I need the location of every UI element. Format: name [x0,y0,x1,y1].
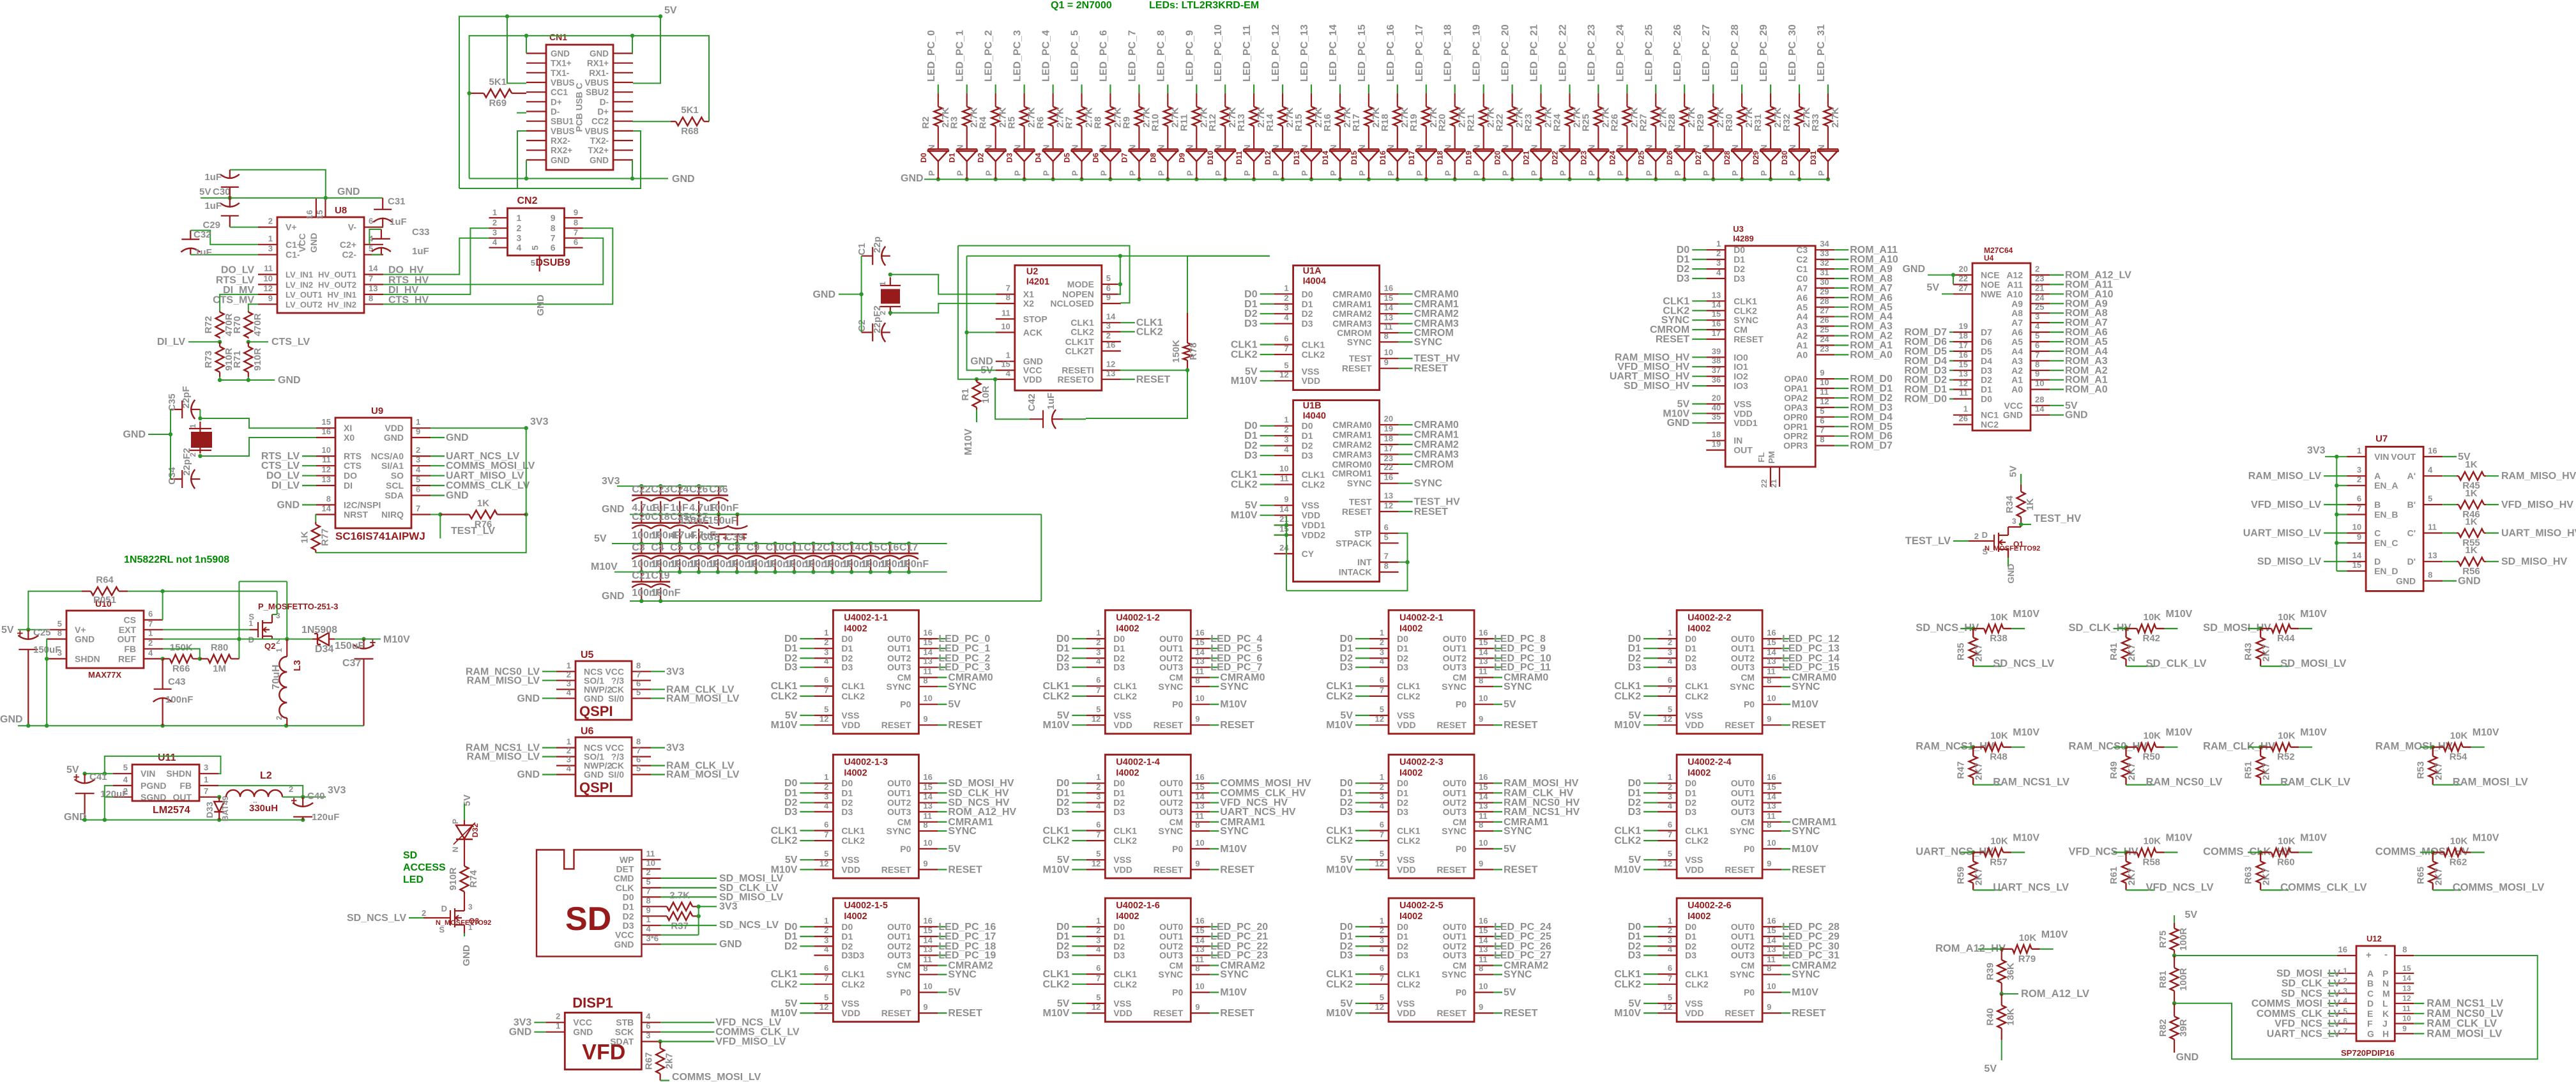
svg-text:3: 3 [567,678,571,688]
svg-text:CMRAM0: CMRAM0 [1332,289,1372,299]
svg-text:SD_MOSI_LV: SD_MOSI_LV [2280,658,2346,669]
svg-text:A12: A12 [2006,270,2023,280]
svg-text:D0: D0 [1734,245,1745,255]
svg-text:4: 4 [1380,657,1385,666]
svg-text:M10V: M10V [1220,987,1247,998]
svg-text:1: 1 [567,737,571,747]
svg-text:2k7: 2k7 [664,1053,675,1069]
svg-text:SD_NCS_LV: SD_NCS_LV [1993,658,2054,669]
svg-text:5V: 5V [594,533,607,544]
svg-text:3: 3 [646,1031,650,1040]
svg-text:5K1: 5K1 [681,105,699,116]
svg-text:C41: C41 [89,772,107,782]
svg-text:12: 12 [264,284,273,293]
svg-text:R67: R67 [644,1052,655,1070]
svg-text:BAT49: BAT49 [220,796,230,821]
svg-text:WP: WP [620,855,634,865]
svg-text:RAM_MISO_LV: RAM_MISO_LV [467,675,540,686]
svg-text:M10V: M10V [2300,609,2327,620]
svg-text:17: 17 [1712,328,1721,338]
svg-text:VFD_MISO_LV: VFD_MISO_LV [715,1037,786,1048]
svg-text:14: 14 [2352,551,2362,560]
svg-text:13: 13 [923,945,932,954]
svg-text:RESET: RESET [1154,1008,1184,1018]
svg-text:M10V: M10V [1231,376,1258,386]
svg-text:5: 5 [636,764,641,773]
svg-text:CLK2: CLK2 [1302,349,1325,360]
svg-text:D1: D1 [841,643,853,653]
svg-text:5: 5 [824,849,828,858]
svg-text:CMRAM2: CMRAM2 [1414,439,1459,450]
svg-text:D0: D0 [1685,922,1696,932]
svg-text:F: F [2367,1019,2373,1029]
svg-text:U2: U2 [1026,266,1039,277]
svg-text:910R: 910R [252,348,263,371]
svg-text:5: 5 [57,619,62,629]
svg-text:D13: D13 [1292,151,1301,165]
svg-text:UART_NCS_LV: UART_NCS_LV [2267,1028,2341,1039]
svg-text:9: 9 [2357,532,2361,542]
svg-text:1: 1 [2357,446,2361,455]
svg-text:OUT1: OUT1 [1159,931,1184,941]
svg-text:COMMS_MOSI_LV: COMMS_MOSI_LV [446,461,535,471]
svg-text:D1: D1 [1302,431,1313,441]
svg-text:14: 14 [1479,935,1488,945]
svg-text:16: 16 [1767,772,1776,782]
svg-text:6: 6 [369,217,373,226]
svg-text:VDD1: VDD1 [1302,520,1326,530]
svg-text:40: 40 [1712,402,1721,412]
svg-text:CLK2: CLK2 [1302,480,1325,490]
svg-text:15: 15 [1195,782,1204,791]
svg-text:COMMS_CLK_LV: COMMS_CLK_LV [2280,882,2366,894]
svg-text:D28: D28 [1723,151,1732,165]
svg-text:CMRAM3: CMRAM3 [1332,449,1372,459]
svg-text:A: A [2367,968,2374,979]
svg-text:1: 1 [824,916,828,926]
svg-text:R47: R47 [1956,761,1967,779]
svg-text:C33: C33 [412,227,430,238]
svg-text:VOUT: VOUT [2391,452,2416,462]
svg-text:30: 30 [1820,277,1829,287]
svg-text:D29: D29 [1751,151,1760,165]
svg-text:D3: D3 [784,662,798,673]
svg-text:P: P [2382,968,2388,979]
svg-text:4: 4 [1284,313,1289,323]
svg-text:C3: C3 [1796,245,1808,255]
svg-text:6: 6 [636,755,641,765]
svg-text:RESETO: RESETO [1057,374,1094,385]
svg-text:C3: C3 [632,542,645,553]
svg-text:15: 15 [1195,637,1204,647]
svg-text:P: P [1185,170,1194,176]
svg-text:8: 8 [1195,964,1200,973]
svg-text:R35: R35 [1956,643,1967,660]
svg-text:D0: D0 [1244,289,1258,300]
svg-text:13: 13 [2428,551,2437,560]
svg-text:7: 7 [2357,504,2361,514]
svg-text:C': C' [2407,528,2416,538]
svg-text:I4002: I4002 [1116,768,1139,779]
svg-text:15: 15 [1959,360,1968,369]
svg-text:2K7: 2K7 [2126,644,2137,662]
svg-text:P0: P0 [1456,987,1467,998]
svg-text:RESET: RESET [1725,720,1755,730]
svg-text:R4: R4 [978,116,989,129]
svg-text:14: 14 [923,935,933,945]
svg-text:C19: C19 [651,570,669,581]
svg-text:11: 11 [1767,667,1776,676]
svg-text:4: 4 [824,657,829,666]
svg-text:M10V: M10V [2300,833,2327,844]
svg-text:2K7: 2K7 [2126,763,2137,781]
svg-text:7: 7 [1820,425,1824,435]
svg-text:R57: R57 [1990,857,2008,868]
svg-text:OPR3: OPR3 [1783,441,1808,451]
svg-text:D1: D1 [1244,431,1258,441]
svg-text:6: 6 [2343,1017,2347,1026]
svg-text:1uF: 1uF [204,172,222,183]
svg-text:U4002-2-5: U4002-2-5 [1399,901,1444,911]
svg-text:D3: D3 [1005,153,1014,163]
svg-text:SC16IS741AIPWJ: SC16IS741AIPWJ [335,530,425,542]
svg-text:9: 9 [646,905,651,915]
svg-text:L: L [2382,998,2388,1009]
svg-text:5: 5 [1284,360,1288,370]
svg-text:7: 7 [824,830,828,839]
svg-text:ROM_A0: ROM_A0 [1850,349,1893,360]
svg-text:I4002: I4002 [844,623,867,634]
svg-text:P0: P0 [1456,844,1467,854]
svg-text:D5: D5 [1981,346,1992,356]
svg-text:10K: 10K [2450,731,2468,742]
svg-text:C8: C8 [728,542,741,553]
svg-text:ROM_A12_HV: ROM_A12_HV [948,807,1016,818]
svg-text:3V3: 3V3 [666,666,685,677]
svg-text:A0: A0 [1796,349,1808,360]
svg-text:+: + [73,771,80,783]
svg-text:D3: D3 [1734,273,1745,284]
svg-text:1: 1 [556,1021,560,1031]
svg-text:CLK1: CLK1 [841,969,865,979]
svg-text:D1: D1 [1397,931,1408,941]
svg-text:X0: X0 [344,432,354,443]
svg-text:16: 16 [923,628,932,637]
svg-text:16: 16 [923,916,932,926]
svg-text:RESET: RESET [948,720,982,731]
svg-text:D3: D3 [1340,662,1353,673]
svg-text:D1: D1 [948,153,957,163]
svg-text:R68: R68 [681,126,699,137]
svg-text:R77: R77 [319,528,330,546]
svg-text:1K: 1K [2465,459,2477,470]
svg-text:12: 12 [1092,1002,1101,1012]
svg-text:3V3: 3V3 [666,743,685,754]
svg-text:14: 14 [1106,312,1116,321]
svg-text:13: 13 [1195,945,1204,954]
svg-text:LED_PC_13: LED_PC_13 [1299,24,1310,82]
svg-text:C9: C9 [747,542,760,553]
svg-text:DO_LV: DO_LV [221,265,254,276]
svg-text:9: 9 [1284,494,1288,504]
svg-text:LED_PC_19: LED_PC_19 [1472,24,1482,82]
svg-text:P: P [1300,170,1309,176]
svg-text:1: 1 [248,619,253,628]
svg-text:SO: SO [391,471,404,481]
svg-text:8: 8 [636,737,641,747]
svg-text:VDD: VDD [385,423,404,433]
svg-text:CLK1: CLK1 [771,681,798,692]
svg-text:3: 3 [268,244,273,254]
svg-text:M10V: M10V [1792,987,1818,998]
svg-text:D3: D3 [1340,807,1353,818]
svg-text:MAX77X: MAX77X [88,670,121,680]
svg-text:OUT3: OUT3 [1159,662,1184,673]
svg-text:R80: R80 [211,642,229,653]
svg-text:EN_A: EN_A [2374,480,2398,491]
svg-text:M10V: M10V [1043,1008,1070,1019]
svg-text:SHDN: SHDN [166,768,192,779]
svg-text:P0: P0 [900,987,911,998]
svg-text:OUT3: OUT3 [887,950,911,961]
svg-text:2: 2 [1096,782,1101,791]
svg-text:SD_CLK_LV: SD_CLK_LV [2146,658,2207,669]
svg-text:12: 12 [1959,379,1968,388]
svg-text:OUT1: OUT1 [1159,788,1184,798]
svg-text:100nF: 100nF [165,694,193,705]
svg-text:LED_PC_6: LED_PC_6 [1098,30,1109,82]
svg-text:3: 3 [824,648,828,657]
svg-text:7: 7 [148,619,153,629]
svg-text:M10V: M10V [1614,1008,1641,1019]
svg-text:D3: D3 [1685,662,1696,673]
svg-text:GND: GND [509,1027,532,1038]
svg-text:19: 19 [1959,321,1968,331]
svg-text:D4: D4 [1981,356,1992,366]
svg-text:10: 10 [1195,838,1204,848]
svg-text:7: 7 [1668,830,1672,839]
svg-text:CMRAM1: CMRAM1 [1332,299,1372,309]
svg-text:CLK1: CLK1 [1113,969,1137,979]
svg-text:D10: D10 [1206,151,1215,165]
svg-text:D24: D24 [1608,151,1617,165]
svg-text:C1: C1 [857,243,867,255]
svg-text:U4002-2-6: U4002-2-6 [1688,901,1732,911]
svg-text:OUT1: OUT1 [1731,788,1755,798]
svg-text:A2: A2 [1796,331,1808,341]
svg-text:P0: P0 [1172,844,1183,854]
svg-text:RESET: RESET [1792,864,1826,875]
svg-text:SYNC: SYNC [1414,337,1443,347]
svg-text:U4: U4 [1984,254,1994,263]
svg-text:9: 9 [1767,714,1771,724]
svg-text:70uH: 70uH [271,664,282,689]
svg-text:CLK1: CLK1 [1397,969,1421,979]
svg-text:D1: D1 [1113,788,1125,798]
svg-text:D7: D7 [1120,153,1129,163]
svg-text:36: 36 [1712,375,1721,385]
svg-text:RTS: RTS [344,451,362,461]
svg-text:7: 7 [204,786,208,796]
svg-text:R78: R78 [1188,342,1199,360]
svg-text:SYNC: SYNC [1792,826,1820,837]
svg-text:6: 6 [2357,494,2361,503]
svg-text:21: 21 [1279,514,1288,524]
svg-text:16: 16 [1106,340,1115,350]
svg-text:R54: R54 [2450,752,2467,763]
svg-text:RESET: RESET [948,1008,982,1019]
svg-text:OUT0: OUT0 [1159,634,1184,644]
svg-text:3V3: 3V3 [328,785,346,796]
svg-text:1K: 1K [2025,498,2036,510]
svg-text:9: 9 [923,858,927,868]
svg-text:15: 15 [923,926,932,935]
svg-text:OUT1: OUT1 [1443,788,1467,798]
svg-text:150K: 150K [170,642,193,653]
svg-text:1uF: 1uF [412,246,429,257]
svg-text:NWE: NWE [1981,289,2002,299]
svg-text:LV_OUT2: LV_OUT2 [286,300,323,309]
svg-text:D3: D3 [841,807,853,817]
svg-text:D11: D11 [1235,151,1244,165]
svg-text:U4002-2-2: U4002-2-2 [1688,613,1732,623]
svg-text:C0: C0 [1796,273,1808,284]
svg-text:SD_MOSI_LV: SD_MOSI_LV [2276,968,2341,979]
svg-text:2: 2 [1668,782,1672,791]
svg-text:11: 11 [1195,811,1204,821]
svg-text:4: 4 [1668,945,1673,954]
svg-text:C37: C37 [342,658,361,669]
svg-text:8: 8 [1384,331,1389,340]
svg-text:RAM_NCS0_LV: RAM_NCS0_LV [2146,777,2223,788]
svg-text:RESET: RESET [881,720,911,730]
svg-text:LED_PC_22: LED_PC_22 [1558,24,1569,82]
svg-text:M10V: M10V [1043,720,1070,731]
svg-text:2: 2 [1716,248,1721,258]
svg-text:LED_PC_30: LED_PC_30 [1787,24,1798,82]
svg-text:CLK1: CLK1 [1302,340,1325,350]
svg-text:V+: V+ [75,625,86,635]
svg-text:2K7: 2K7 [2261,763,2272,781]
svg-text:A3: A3 [1796,321,1808,331]
svg-text:LV_IN1: LV_IN1 [286,270,313,280]
svg-text:C32: C32 [194,229,211,240]
svg-text:D19: D19 [1465,151,1474,165]
svg-text:RAM_MOSI_LV: RAM_MOSI_LV [2453,777,2528,788]
svg-text:A: A [2374,471,2381,481]
svg-text:R18: R18 [1380,114,1391,132]
svg-text:5V: 5V [948,844,961,855]
svg-text:CLK1: CLK1 [1685,825,1709,835]
svg-text:SYNC: SYNC [1220,682,1249,692]
svg-text:16: 16 [1712,319,1721,328]
svg-text:7: 7 [646,886,651,895]
svg-text:D0: D0 [1113,922,1125,932]
svg-text:R44: R44 [2277,633,2295,644]
svg-text:FB: FB [179,781,192,791]
svg-text:SYNC: SYNC [1792,970,1820,980]
svg-text:GND: GND [0,714,23,725]
svg-text:3: 3 [204,763,208,772]
svg-text:8: 8 [369,293,373,303]
svg-text:D3: D3 [1628,662,1642,673]
svg-text:21: 21 [2035,283,2044,293]
svg-text:15: 15 [1001,360,1010,369]
svg-text:D1: D1 [1685,931,1696,941]
svg-text:4: 4 [2035,321,2040,331]
svg-text:5V: 5V [1504,844,1516,855]
svg-text:P: P [1472,170,1482,176]
svg-text:Q3: Q3 [469,917,479,926]
svg-text:15: 15 [1195,926,1204,935]
svg-text:M10V: M10V [1220,844,1247,855]
svg-text:J: J [2382,1019,2388,1029]
svg-text:10: 10 [2035,379,2044,388]
svg-text:D0: D0 [1685,778,1696,788]
svg-text:5: 5 [369,244,373,254]
svg-text:10: 10 [1767,694,1776,703]
svg-text:1: 1 [1096,916,1101,926]
svg-text:14: 14 [923,792,933,802]
svg-text:INTACK: INTACK [1339,567,1372,577]
svg-text:24: 24 [1820,335,1829,344]
svg-text:5: 5 [824,705,828,714]
svg-text:9: 9 [268,293,273,303]
svg-text:VDD: VDD [1685,720,1704,730]
svg-text:M10V: M10V [1220,699,1247,710]
svg-text:CTS_LV: CTS_LV [271,337,310,347]
svg-text:5: 5 [1380,705,1384,714]
svg-text:5: 5 [1668,705,1672,714]
svg-text:6: 6 [824,675,828,685]
svg-text:ACCESS: ACCESS [403,862,446,873]
svg-text:D2: D2 [977,153,986,163]
svg-text:GND: GND [278,375,301,386]
svg-text:2: 2 [1668,637,1672,647]
svg-text:RAM_MOSI_LV: RAM_MOSI_LV [666,770,740,781]
svg-text:OUT3: OUT3 [1731,807,1755,817]
svg-text:A11: A11 [2007,279,2023,289]
svg-text:SYNC: SYNC [1504,826,1532,837]
svg-text:14: 14 [322,504,332,514]
svg-text:CLK2: CLK2 [1685,979,1709,989]
svg-text:OUT1: OUT1 [887,931,911,941]
svg-text:CLK2: CLK2 [1734,305,1757,316]
svg-text:ROM_D0: ROM_D0 [1904,394,1947,405]
svg-text:39: 39 [1712,346,1721,356]
svg-text:3: 3 [1284,303,1288,312]
svg-text:A7: A7 [2011,317,2023,328]
svg-text:12: 12 [819,858,828,868]
svg-text:U7: U7 [2375,433,2388,444]
svg-text:IO1: IO1 [1734,362,1748,372]
svg-text:1uF: 1uF [195,247,212,258]
svg-text:CLK2: CLK2 [1043,979,1070,990]
svg-text:RESET: RESET [1342,507,1372,517]
svg-text:SI/A1: SI/A1 [381,461,404,471]
svg-text:CLK1: CLK1 [1734,296,1757,306]
svg-text:36K: 36K [2006,963,2016,980]
svg-text:5V: 5V [1504,699,1516,710]
svg-text:13: 13 [322,475,331,484]
svg-text:LEDs: LTL2R3KRD-EM: LEDs: LTL2R3KRD-EM [1149,0,1259,11]
svg-text:13: 13 [1479,801,1488,811]
svg-text:11: 11 [1002,308,1010,317]
svg-text:CMROM: CMROM [1414,459,1454,470]
svg-text:D3: D3 [1677,273,1690,284]
svg-text:IN: IN [1734,436,1742,446]
svg-text:39R: 39R [2178,1019,2189,1037]
